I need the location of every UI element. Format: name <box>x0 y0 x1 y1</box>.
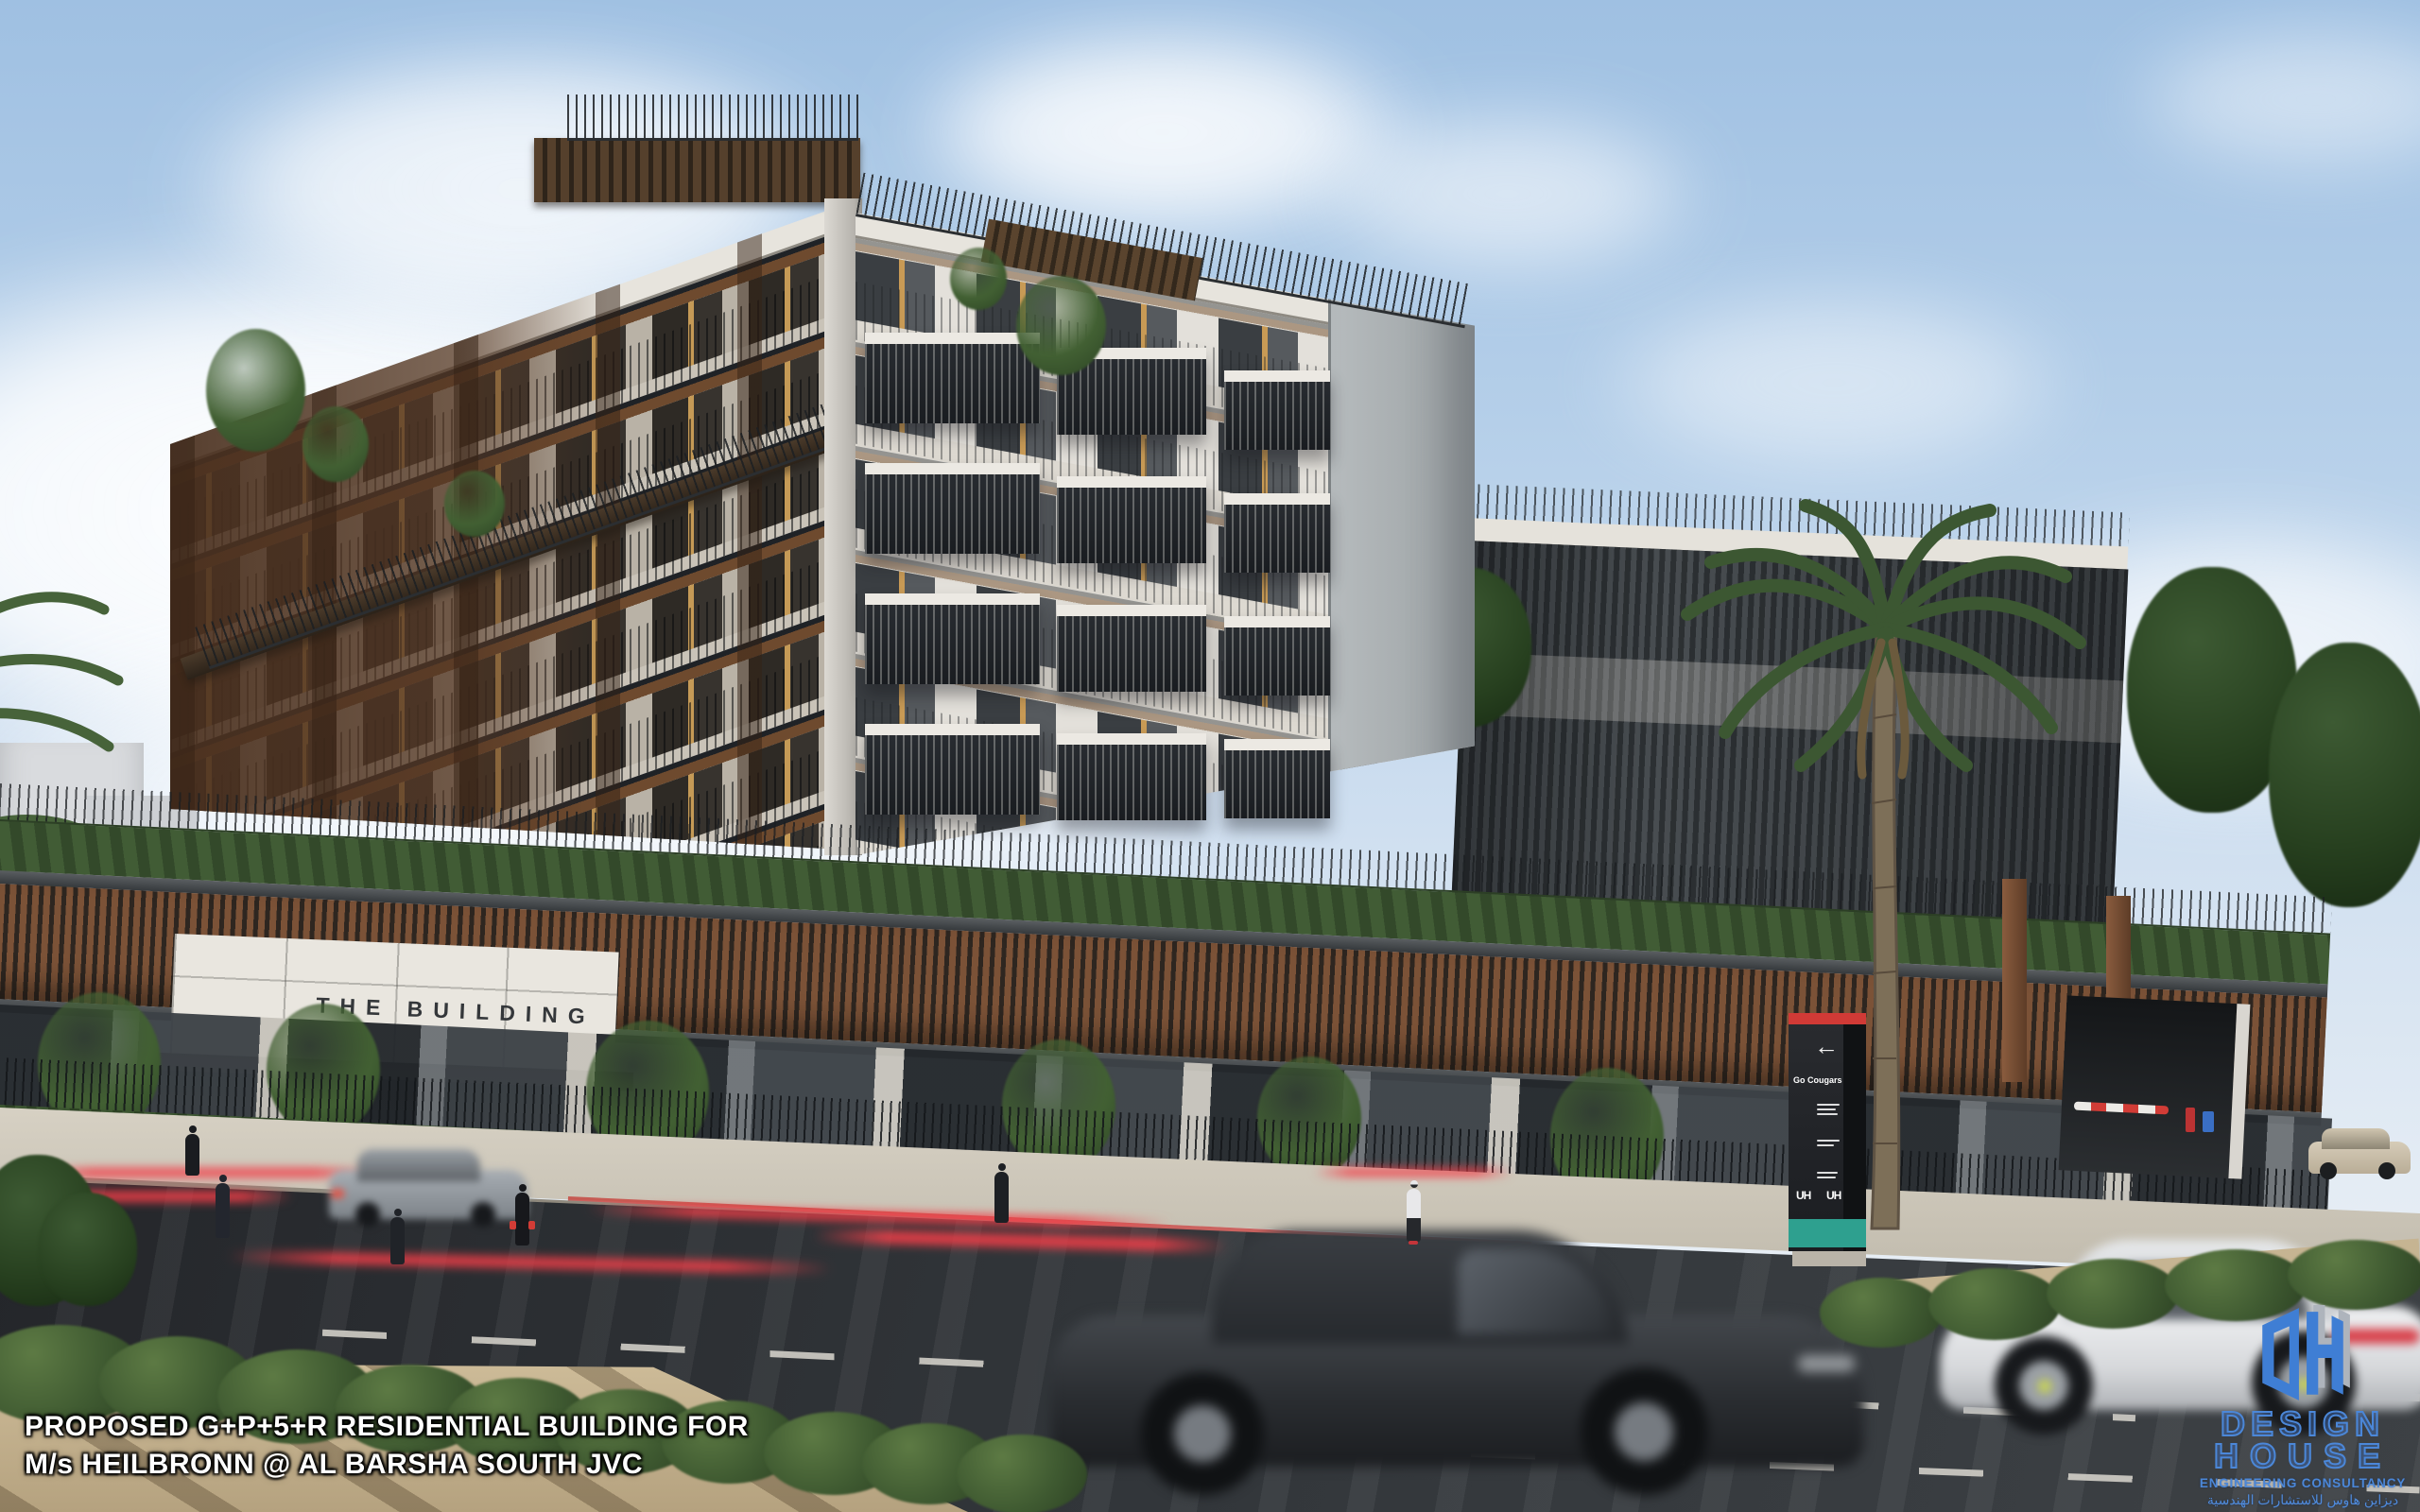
logo-tagline: ENGINEERING CONSULTANCY <box>2191 1476 2414 1490</box>
pedestrian <box>185 1134 199 1176</box>
balcony <box>1224 739 1330 818</box>
bush <box>1820 1278 1943 1348</box>
rendering-canvas: THE BUILDING ← Go Cougars <box>0 0 2420 1512</box>
design-house-logo-icon <box>2254 1302 2352 1408</box>
pedestrian <box>515 1193 529 1246</box>
balcony <box>865 593 1040 684</box>
car-cabin <box>2322 1128 2390 1149</box>
bush <box>957 1435 1087 1512</box>
palm-trunk <box>1872 633 1899 1228</box>
balcony <box>1057 605 1206 692</box>
car-taillight <box>331 1189 344 1198</box>
bush <box>2288 1240 2420 1310</box>
car-wheel <box>2320 1162 2337 1179</box>
car-wheel-rim <box>1615 1402 1673 1461</box>
balcony <box>865 724 1040 815</box>
balcony <box>1224 493 1330 573</box>
car-wheel <box>2378 1162 2395 1179</box>
balcony <box>865 463 1040 554</box>
roof-tree <box>950 248 1007 310</box>
design-house-logo: DESIGN HOUSE ENGINEERING CONSULTANCY ديز… <box>2191 1302 2414 1508</box>
roof-tree <box>302 406 369 482</box>
podium-tree <box>2269 643 2420 907</box>
project-title-line1: PROPOSED G+P+5+R RESIDENTIAL BUILDING FO… <box>25 1408 749 1446</box>
balcony <box>865 333 1040 423</box>
roof-railing-top <box>567 94 858 141</box>
parked-car <box>2308 1126 2411 1179</box>
red-shoes <box>1409 1241 1418 1245</box>
dark-coupe <box>1051 1211 1864 1495</box>
gray-sedan <box>329 1132 527 1227</box>
car-wheel <box>355 1202 380 1227</box>
roof-tree <box>206 329 305 452</box>
logo-arabic-text: ديزاين هاوس للاستشارات الهندسية <box>2191 1492 2414 1508</box>
project-title-overlay: PROPOSED G+P+5+R RESIDENTIAL BUILDING FO… <box>25 1408 749 1484</box>
balcony <box>1224 370 1330 450</box>
bush <box>2047 1259 2179 1329</box>
car-wheel-rim <box>1174 1405 1231 1462</box>
palm-tree <box>1645 491 2117 1257</box>
balcony <box>1057 733 1206 820</box>
foreground-plant <box>38 1193 137 1306</box>
pedestrian <box>1407 1189 1421 1242</box>
pedestrian <box>216 1183 230 1238</box>
cloud <box>2117 19 2420 180</box>
shopping-bag <box>528 1221 535 1229</box>
project-title-line2: M/s HEILBRONN @ AL BARSHA SOUTH JVC <box>25 1446 749 1484</box>
parking-sign <box>2186 1108 2195 1132</box>
cloud <box>1305 104 1711 283</box>
shopping-bag <box>510 1221 516 1229</box>
car-headlight <box>1798 1355 1855 1372</box>
pedestrian <box>994 1172 1009 1223</box>
pedestrian <box>390 1217 405 1264</box>
car-wheel <box>471 1202 495 1227</box>
balcony <box>1057 476 1206 563</box>
roof-tree <box>444 471 505 537</box>
roof-tree <box>1016 276 1106 375</box>
logo-word-design: DESIGN <box>2191 1408 2414 1440</box>
car-brake-caliper <box>2038 1380 2051 1393</box>
cloud <box>1588 283 2080 482</box>
balcony <box>1224 616 1330 696</box>
car-cabin <box>357 1149 480 1181</box>
taillight-streak <box>1314 1168 1512 1177</box>
parking-sign <box>2203 1111 2214 1132</box>
roof-pergola-cap <box>534 138 860 202</box>
bush <box>1928 1268 2061 1340</box>
logo-word-house: HOUSE <box>2191 1440 2414 1472</box>
